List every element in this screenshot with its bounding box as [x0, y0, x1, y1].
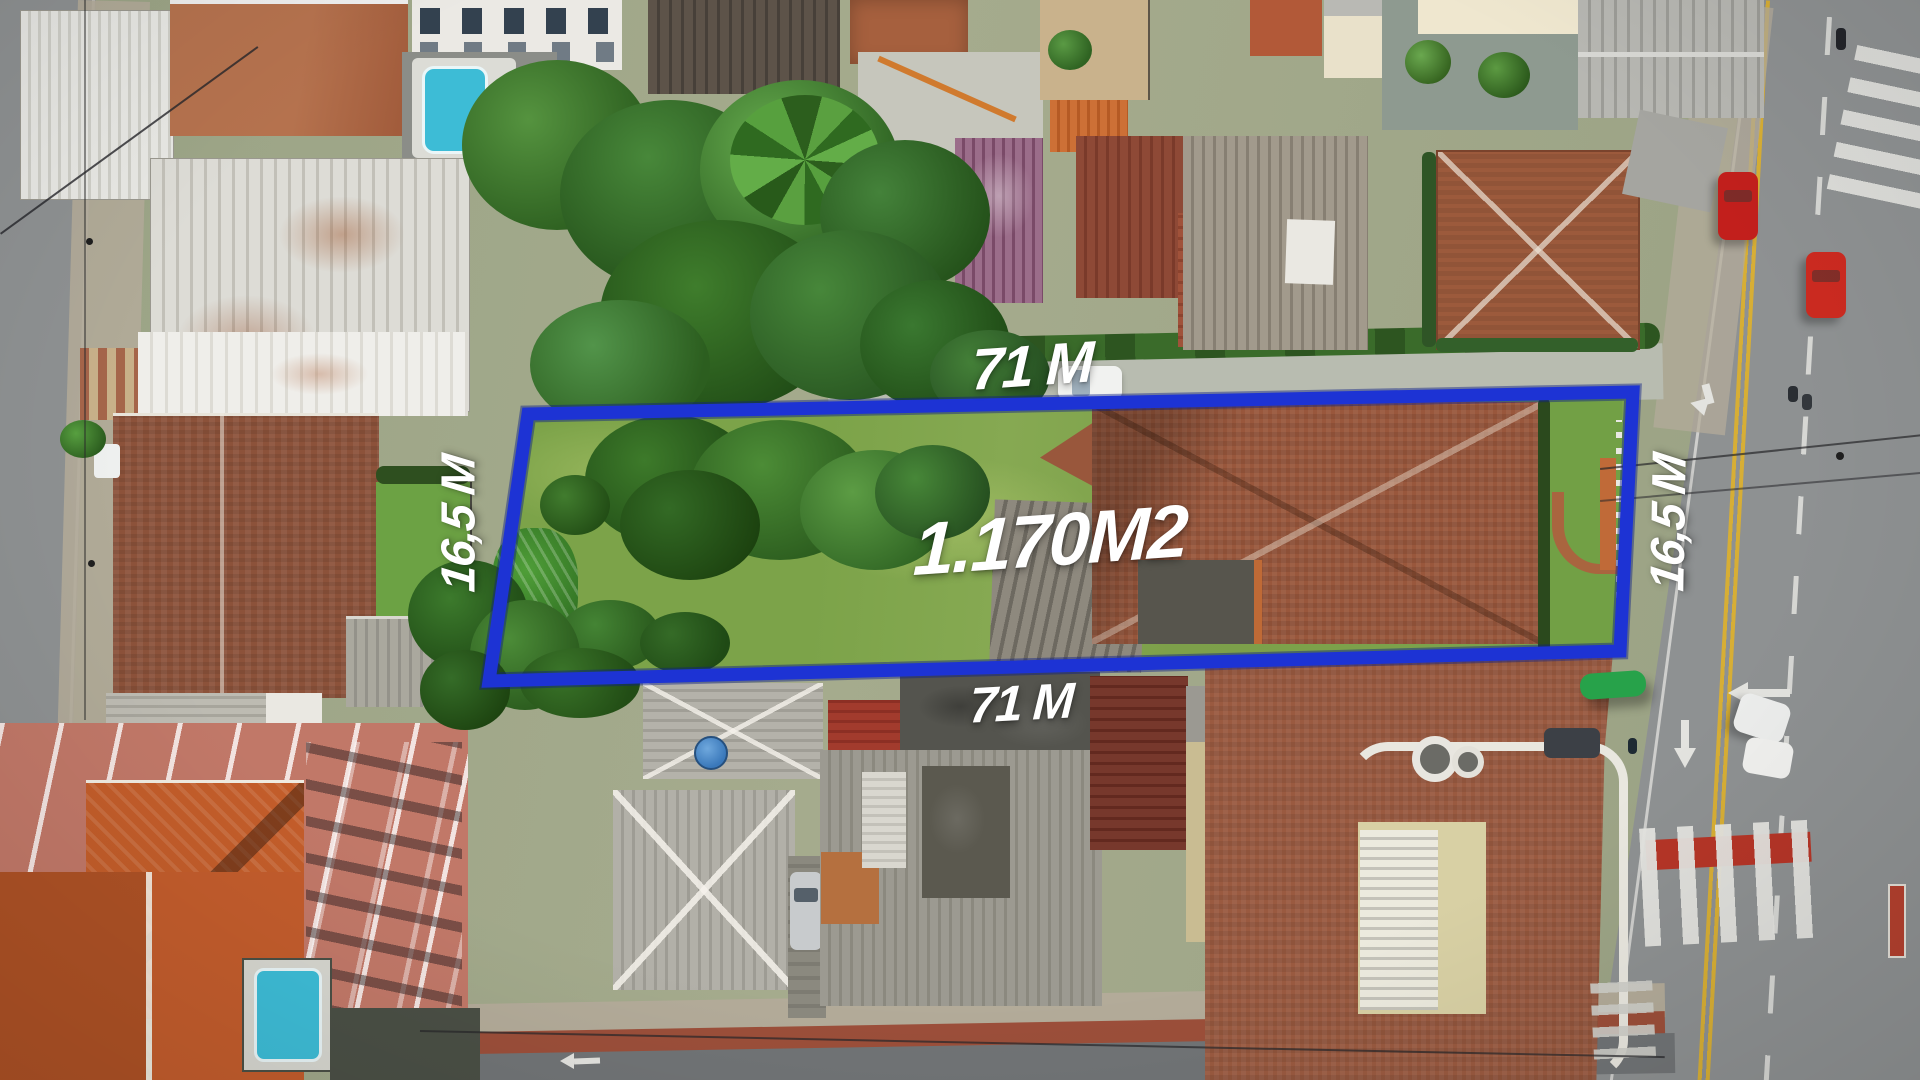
patio-plant — [1478, 52, 1530, 98]
red-car — [1718, 172, 1758, 240]
crosswalk-small — [1590, 976, 1656, 1059]
street-arrow — [574, 1058, 600, 1065]
utility-pole — [86, 238, 93, 245]
dark-car — [1544, 728, 1600, 758]
weathered-dark-patch — [922, 766, 1010, 898]
orange-roof-toprow — [1250, 0, 1322, 56]
street-arrow-head — [560, 1053, 574, 1069]
backyard-planter-wall — [1600, 458, 1616, 570]
sidewalk-bush — [60, 420, 106, 458]
white-rooftop-unit — [862, 772, 906, 868]
road-arrow-down-bar — [1681, 720, 1689, 748]
red-car — [1806, 252, 1846, 318]
roof-vent-round — [1412, 736, 1458, 782]
motorbike — [1836, 28, 1846, 50]
cream-band — [1418, 0, 1583, 34]
roadside-sign — [1888, 884, 1906, 958]
gray-slat-roofs — [1183, 136, 1368, 350]
ornate-roof-terrace — [1360, 830, 1438, 1010]
road-arrow-down-head — [1674, 748, 1696, 768]
red-car-windshield — [1812, 270, 1840, 282]
left-house-ridge — [220, 413, 224, 695]
white-tarp-patch — [1285, 219, 1335, 285]
backyard-fence-posts — [1616, 420, 1622, 630]
apartment-windows — [420, 8, 616, 34]
dimension-label-depth-right: 16,5 M — [1640, 452, 1697, 593]
pedestrian — [1628, 738, 1637, 754]
dark-red-roof — [1076, 136, 1184, 298]
power-line — [84, 0, 86, 720]
yard-tree — [1048, 30, 1092, 70]
shaded-gap — [330, 1008, 480, 1080]
gray-shingle-ridge — [1578, 52, 1764, 57]
hip-roof-house-topright — [1436, 150, 1640, 350]
driveway-topright — [1622, 110, 1728, 213]
silver-car-windshield — [794, 888, 818, 902]
left-sidewalk-mosaic — [80, 348, 138, 420]
water-tank — [694, 736, 728, 770]
maroon-roof — [1090, 676, 1188, 850]
utility-pole — [88, 560, 95, 567]
tree-canopy — [530, 300, 710, 430]
left-house-roof — [113, 413, 379, 698]
warehouse-white-band — [138, 332, 468, 416]
crosswalk-bottom-right — [1639, 819, 1823, 946]
terracotta-roof-topleft — [170, 0, 408, 136]
tree-canopy — [520, 648, 640, 718]
motorcyclists — [1788, 386, 1798, 402]
silver-car — [790, 872, 822, 950]
red-car-windshield — [1724, 190, 1752, 202]
roof-vent-round — [1452, 746, 1484, 778]
aerial-photo: 71 M 1.170M2 71 M 16,5 M 16,5 M — [0, 0, 1920, 1080]
lot-bush — [540, 475, 610, 535]
dimension-label-width-bottom: 71 M — [968, 671, 1074, 735]
bus-shelter — [1579, 670, 1647, 701]
gray-shingle-roof — [1578, 0, 1764, 118]
backyard-hedge — [1538, 398, 1550, 654]
patio-plant — [1405, 40, 1451, 84]
utility-pole — [1836, 452, 1844, 460]
dimension-label-depth-left: 16,5 M — [432, 454, 487, 595]
tree-canopy — [420, 650, 510, 730]
hedge-strip — [1422, 152, 1436, 347]
hedge-strip — [1436, 338, 1638, 352]
lot-tree — [620, 470, 760, 580]
big-gray-hip-roof — [613, 790, 795, 990]
swimming-pool-bottom — [254, 968, 322, 1062]
lot-shrub — [640, 612, 730, 674]
dimension-label-width-top: 71 M — [970, 328, 1093, 404]
gray-hip-roof-tank — [643, 683, 823, 779]
motorcyclists — [1802, 394, 1812, 410]
